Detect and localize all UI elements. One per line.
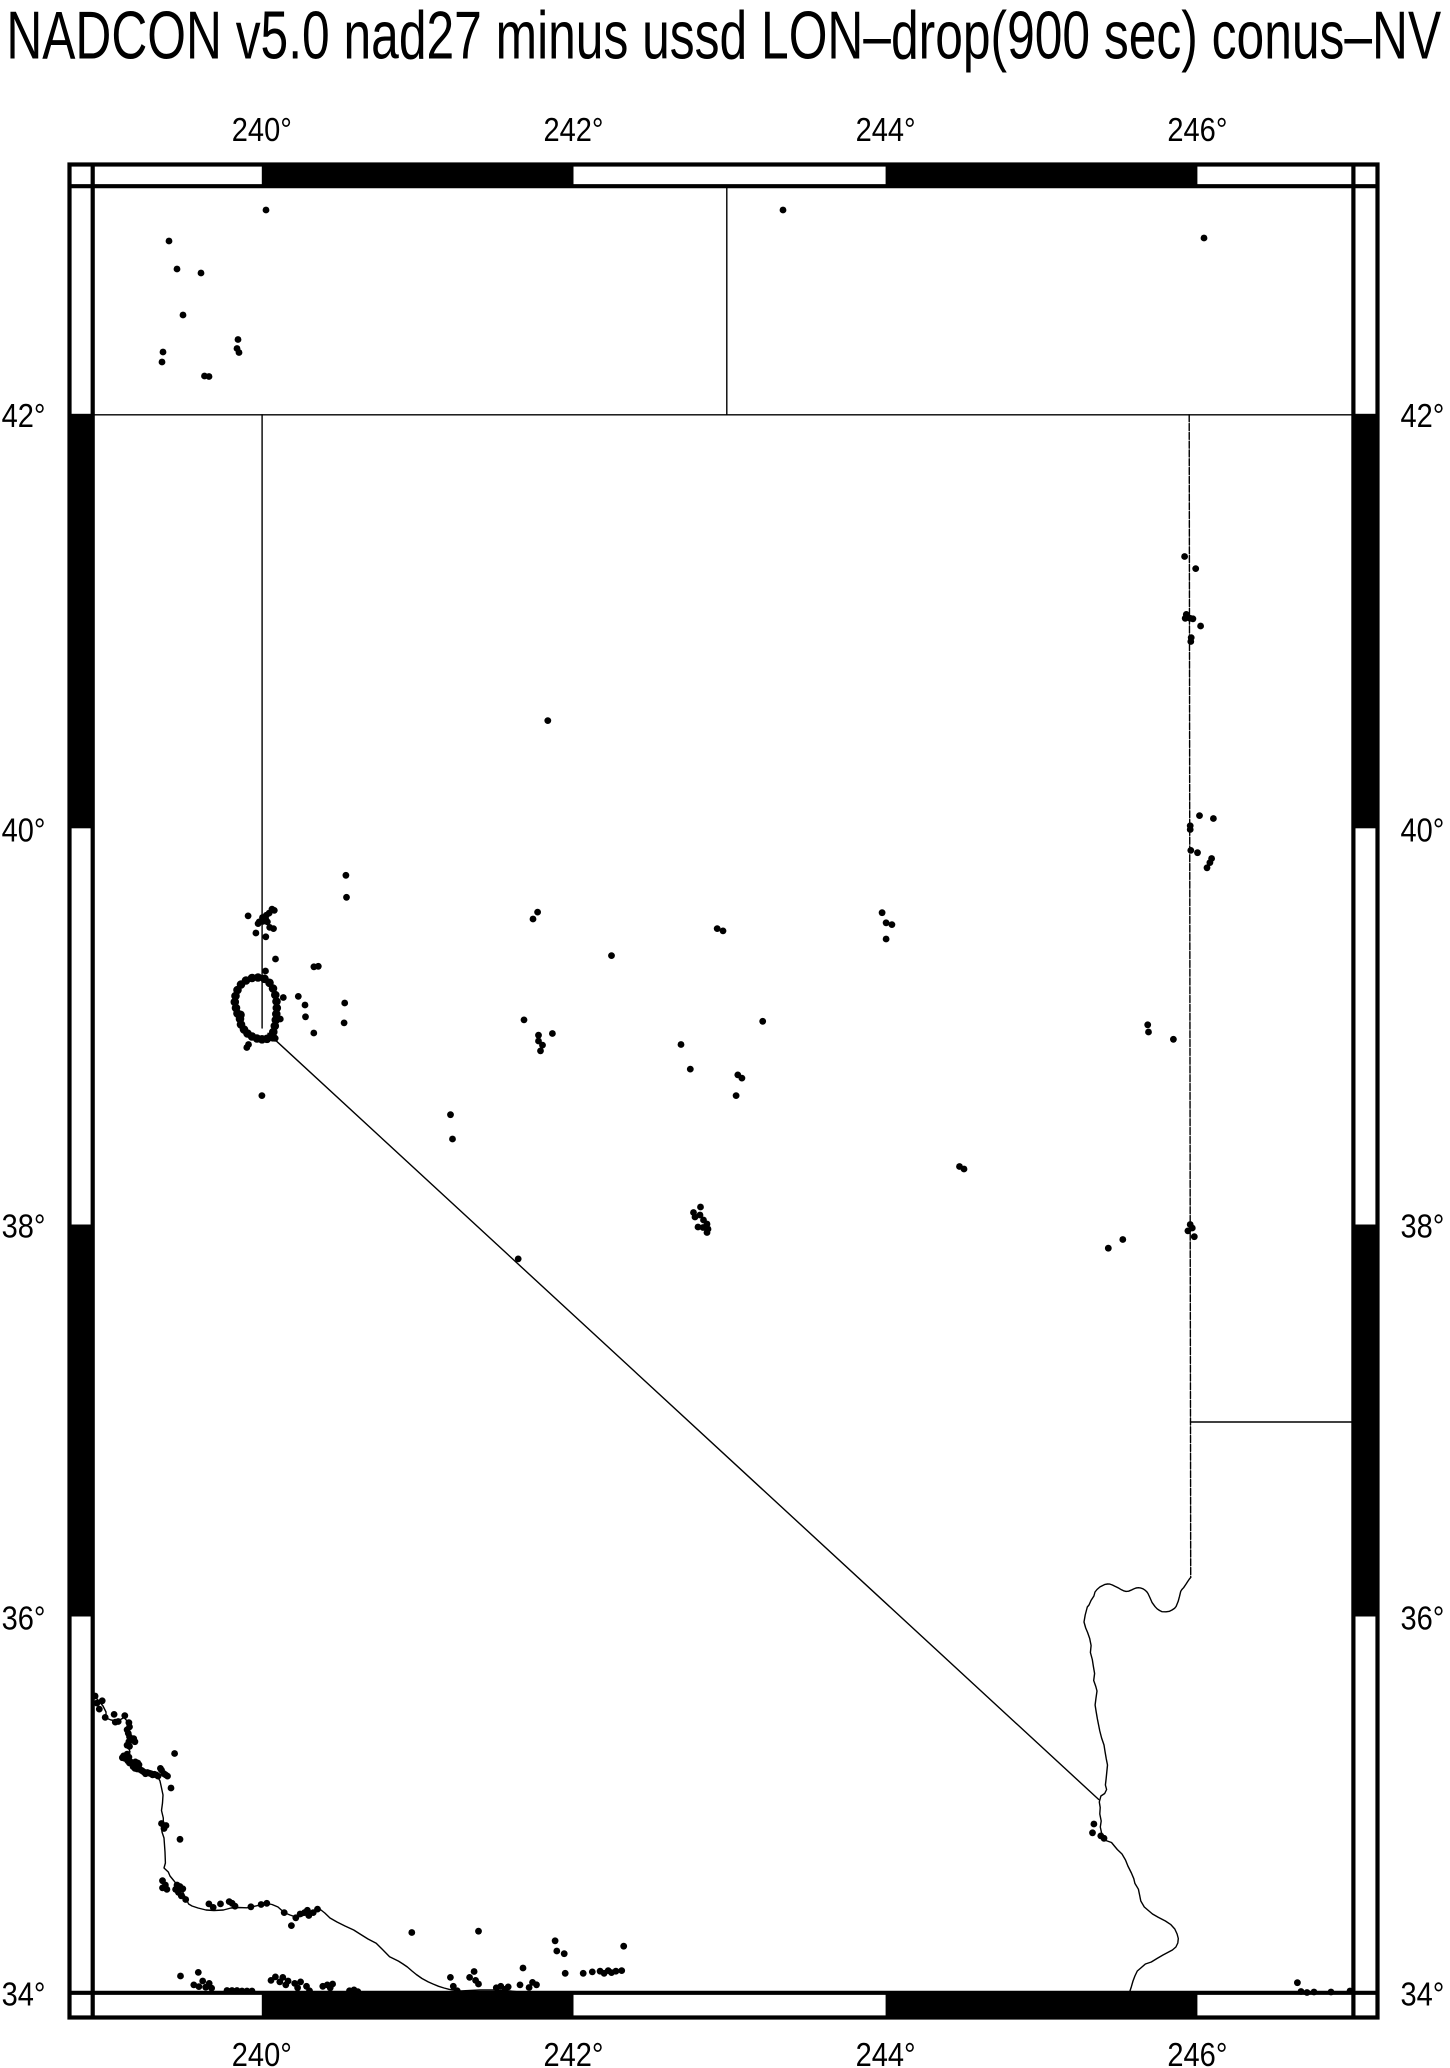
svg-text:38°: 38°: [1401, 1208, 1445, 1245]
svg-text:42°: 42°: [2, 397, 46, 434]
svg-text:40°: 40°: [2, 812, 46, 849]
svg-text:246°: 246°: [1167, 111, 1227, 148]
svg-text:38°: 38°: [2, 1208, 46, 1245]
svg-text:36°: 36°: [1401, 1600, 1445, 1637]
svg-text:34°: 34°: [2, 1976, 46, 2013]
svg-text:34°: 34°: [1401, 1976, 1445, 2013]
svg-text:240°: 240°: [232, 111, 292, 148]
svg-text:40°: 40°: [1401, 812, 1445, 849]
svg-text:242°: 242°: [543, 2036, 603, 2068]
svg-text:246°: 246°: [1167, 2036, 1227, 2068]
svg-text:240°: 240°: [232, 2036, 292, 2068]
svg-text:244°: 244°: [856, 2036, 916, 2068]
svg-text:244°: 244°: [856, 111, 916, 148]
svg-text:42°: 42°: [1401, 397, 1445, 434]
svg-text:36°: 36°: [2, 1600, 46, 1637]
svg-text:NADCON v5.0 nad27 minus ussd L: NADCON v5.0 nad27 minus ussd LON–drop(90…: [6, 0, 1441, 73]
svg-text:242°: 242°: [543, 111, 603, 148]
